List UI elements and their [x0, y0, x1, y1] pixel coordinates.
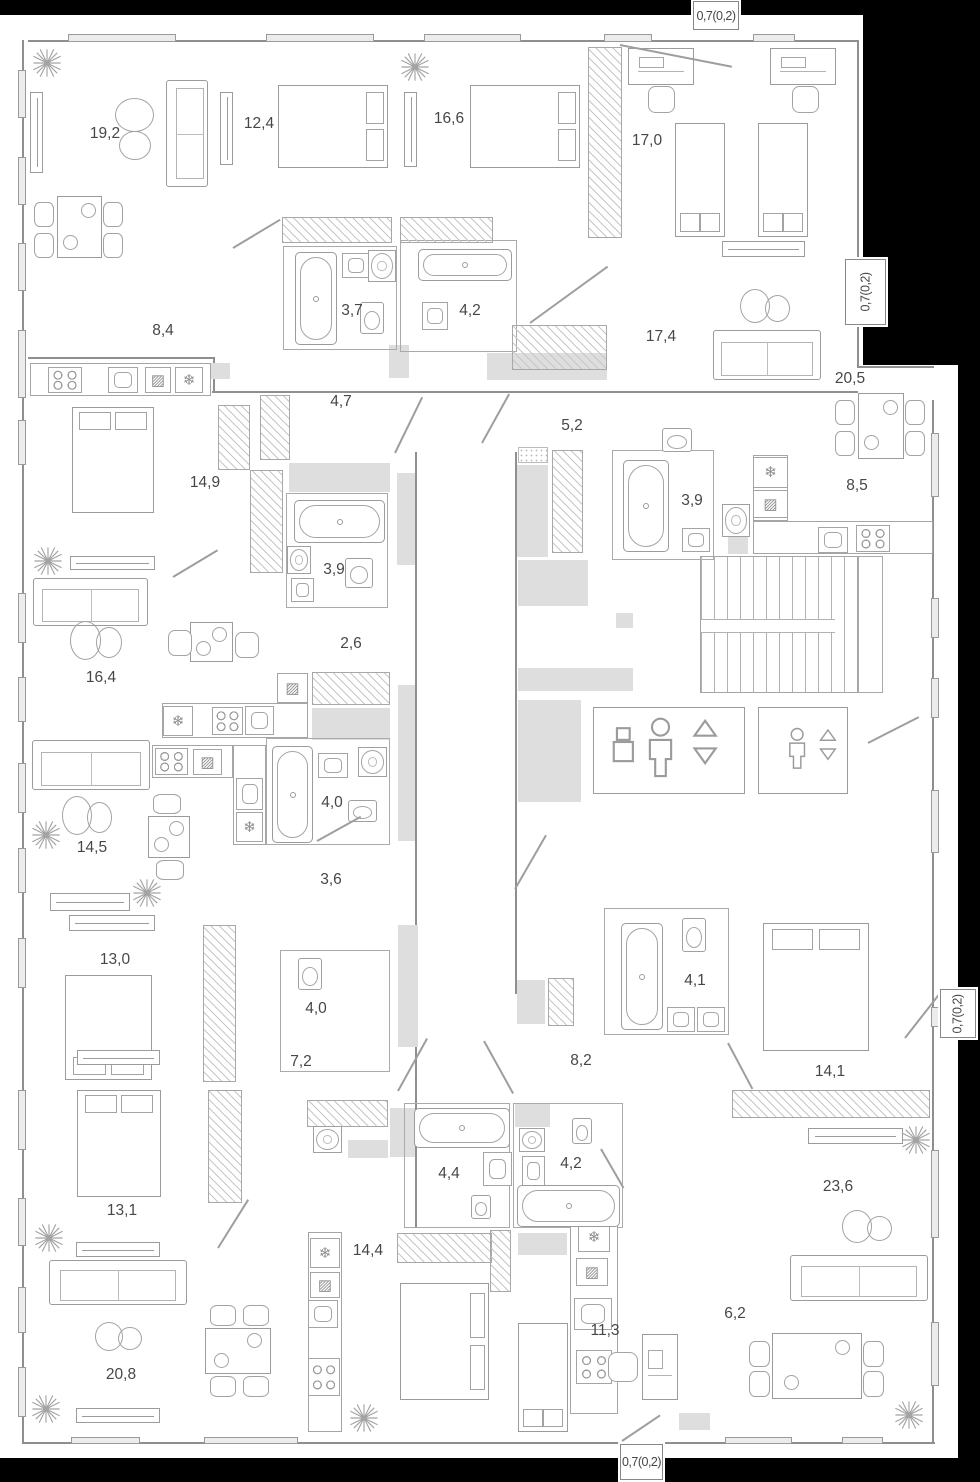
plant-icon	[899, 1123, 933, 1157]
toilet-icon	[682, 918, 706, 952]
chair	[243, 1305, 269, 1326]
wall	[932, 400, 934, 1444]
room-area-label: 16,4	[86, 669, 116, 687]
service-shaft	[209, 363, 230, 379]
washer-icon	[519, 1128, 545, 1152]
room-area-label: 4,0	[321, 794, 343, 812]
washer-icon	[722, 504, 750, 537]
window-marker	[18, 330, 26, 398]
window-marker	[18, 938, 26, 988]
chair	[749, 1341, 770, 1367]
service-shaft	[517, 465, 548, 557]
wardrobe	[312, 672, 390, 705]
appliance-icon: ❄	[310, 1238, 340, 1268]
desk	[642, 1334, 678, 1400]
room-area-label: 3,9	[323, 561, 345, 579]
window-marker	[931, 1007, 939, 1027]
bed	[470, 85, 580, 168]
plant-icon	[29, 1392, 63, 1426]
service-shaft	[518, 668, 633, 691]
chair	[34, 202, 54, 227]
wall	[857, 366, 934, 368]
toilet-icon	[360, 302, 384, 334]
dining-table	[190, 622, 233, 662]
balcony-label-box: 0,7(0,2)	[845, 259, 886, 325]
wardrobe	[307, 1100, 388, 1127]
room-area-label: 20,8	[106, 1366, 136, 1384]
plant-icon	[30, 46, 64, 80]
wardrobe	[548, 978, 574, 1026]
elevator-icon	[758, 707, 848, 794]
service-shaft	[397, 473, 415, 565]
sofa	[166, 80, 208, 187]
wardrobe	[203, 925, 236, 1082]
service-shaft	[517, 980, 545, 1024]
chair	[103, 233, 123, 258]
bathtub-icon	[272, 746, 313, 843]
appliance-icon: ❄	[236, 812, 263, 842]
chair	[34, 233, 54, 258]
coffee-table	[740, 287, 790, 327]
coffee-table	[70, 618, 122, 664]
service-shaft	[728, 534, 748, 554]
chair	[863, 1371, 884, 1397]
sink-icon	[318, 753, 348, 778]
chair	[608, 1352, 638, 1382]
balcony-area-label: 0,7(0,2)	[859, 272, 873, 311]
room-area-label: 13,0	[100, 951, 130, 969]
sofa	[713, 330, 821, 380]
window-marker	[842, 1437, 883, 1444]
window-marker	[18, 420, 26, 465]
room-area-label: 12,4	[244, 115, 274, 133]
window-marker	[18, 243, 26, 291]
chair	[905, 400, 925, 425]
service-shaft	[289, 463, 390, 492]
bed	[758, 123, 808, 237]
bed	[72, 407, 154, 513]
sink-icon	[483, 1152, 512, 1186]
window-marker	[931, 678, 939, 718]
wardrobe	[260, 395, 290, 460]
appliance-icon: ▨	[193, 749, 222, 775]
plant-icon	[347, 1401, 381, 1435]
room-area-label: 4,1	[684, 972, 706, 990]
appliance-icon: ❄	[175, 367, 203, 393]
balcony-label-box: 0,7(0,2)	[620, 1444, 663, 1480]
window-marker	[18, 763, 26, 813]
bed	[400, 1283, 489, 1400]
window-marker	[604, 34, 652, 42]
appliance-icon: ❄	[753, 457, 788, 488]
stove-icon	[576, 1350, 612, 1384]
sink-icon	[291, 578, 314, 602]
room-area-label: 4,7	[330, 393, 352, 411]
service-shaft	[679, 1413, 710, 1430]
room-area-label: 14,1	[815, 1063, 845, 1081]
room-area-label: 4,0	[305, 1000, 327, 1018]
chair	[210, 1376, 236, 1397]
elevator-icon	[593, 707, 745, 794]
chair	[103, 202, 123, 227]
plant-icon	[398, 50, 432, 84]
plant-icon	[31, 544, 65, 578]
stove-icon	[308, 1358, 340, 1396]
sink-icon	[818, 527, 848, 553]
tv-stand	[77, 1050, 160, 1065]
service-shaft	[518, 1233, 567, 1255]
room-area-label: 8,5	[846, 477, 868, 495]
sofa	[32, 740, 150, 790]
appliance-icon: ▨	[145, 367, 171, 393]
room-area-label: 16,6	[434, 110, 464, 128]
window-marker	[931, 790, 939, 853]
window-marker	[204, 1437, 298, 1444]
sink-icon	[522, 1156, 545, 1186]
service-shaft	[518, 560, 588, 606]
sink-icon	[697, 1007, 725, 1032]
staircase	[700, 556, 858, 693]
wardrobe	[490, 1230, 511, 1292]
room-area-label: 4,2	[459, 302, 481, 320]
stove-icon	[48, 367, 82, 393]
bathtub-icon	[294, 500, 385, 543]
service-shaft	[398, 685, 415, 841]
appliance-icon: ❄	[163, 706, 193, 736]
service-shaft	[398, 925, 418, 1047]
washer-icon	[358, 747, 387, 777]
washer-icon	[368, 250, 396, 282]
room-area-label: 3,9	[681, 492, 703, 510]
sink-icon	[245, 706, 274, 735]
chair	[648, 86, 675, 113]
chair	[792, 86, 819, 113]
sofa	[790, 1255, 928, 1301]
bed	[675, 123, 725, 237]
doormat	[518, 447, 548, 463]
tv-stand	[76, 1408, 160, 1423]
window-marker	[18, 593, 26, 643]
bed	[278, 85, 388, 168]
sink-icon	[667, 1007, 695, 1032]
room-area-label: 5,2	[561, 417, 583, 435]
window-marker	[18, 1198, 26, 1246]
chair	[905, 431, 925, 456]
window-marker	[18, 1367, 26, 1417]
room-area-label: 8,2	[570, 1052, 592, 1070]
room-area-label: 14,4	[353, 1242, 383, 1260]
room-area-label: 3,6	[320, 871, 342, 889]
room-area-label: 17,4	[646, 328, 676, 346]
wardrobe	[218, 405, 250, 470]
wardrobe	[552, 450, 583, 553]
window-marker	[68, 34, 176, 42]
sink-icon	[108, 367, 138, 393]
bathtub-icon	[414, 1108, 510, 1148]
service-shaft	[518, 700, 581, 802]
service-shaft	[348, 1140, 388, 1158]
plant-icon	[32, 1221, 66, 1255]
tv-stand	[808, 1128, 903, 1144]
balcony-area-label: 0,7(0,2)	[696, 9, 735, 23]
window-marker	[266, 34, 374, 42]
toilet-icon	[348, 800, 377, 822]
sink-icon	[422, 302, 448, 330]
chair	[153, 794, 181, 814]
service-shaft	[312, 708, 390, 740]
window-marker	[725, 1437, 792, 1444]
room-area-label: 14,9	[190, 474, 220, 492]
appliance-icon: ▨	[277, 673, 308, 703]
chair	[835, 431, 855, 456]
dining-table	[148, 816, 190, 858]
room-area-label: 4,4	[438, 1165, 460, 1183]
chair	[168, 630, 192, 656]
balcony-area-label: 0,7(0,2)	[622, 1455, 661, 1469]
wall	[22, 1442, 935, 1444]
tv-stand	[76, 1242, 160, 1257]
window-marker	[18, 1090, 26, 1150]
coffee-table	[95, 1320, 142, 1354]
stove-icon	[212, 707, 243, 735]
window-marker	[931, 598, 939, 638]
wall	[212, 391, 858, 393]
service-shaft	[616, 613, 633, 628]
wardrobe	[732, 1090, 930, 1118]
sink-icon	[342, 253, 370, 278]
sink-icon	[236, 778, 263, 810]
room-area-label: 23,6	[823, 1178, 853, 1196]
wardrobe	[400, 217, 493, 243]
tv-stand	[30, 92, 43, 173]
bathtub-icon	[295, 252, 337, 345]
room-area-label: 19,2	[90, 125, 120, 143]
chair	[749, 1371, 770, 1397]
toilet-icon	[572, 1118, 592, 1144]
window-marker	[18, 157, 26, 205]
bathtub-icon	[418, 249, 512, 281]
desk	[770, 48, 836, 85]
sink-icon	[308, 1300, 338, 1328]
coffee-table	[62, 793, 112, 839]
plant-icon	[892, 1398, 926, 1432]
balcony-label-box: 0,7(0,2)	[940, 989, 976, 1038]
window-marker	[71, 1437, 140, 1444]
dining-table	[858, 393, 904, 459]
window-marker	[18, 677, 26, 722]
tv-stand	[220, 92, 233, 165]
window-marker	[931, 1322, 939, 1386]
bed	[518, 1323, 568, 1432]
room-area-label: 17,0	[632, 132, 662, 150]
bathtub-icon	[623, 460, 669, 552]
wardrobe	[588, 47, 622, 238]
bed	[77, 1090, 161, 1197]
appliance-icon: ▨	[576, 1258, 608, 1286]
washer-icon	[287, 546, 311, 574]
room-area-label: 3,7	[341, 302, 363, 320]
sink-icon	[682, 528, 710, 552]
window-marker	[18, 70, 26, 118]
coffee-table	[842, 1208, 892, 1246]
window-marker	[18, 848, 26, 893]
wardrobe	[282, 217, 392, 243]
chair	[243, 1376, 269, 1397]
toilet-icon	[471, 1195, 491, 1219]
window-marker	[18, 1287, 26, 1333]
room-area-label: 6,2	[724, 1305, 746, 1323]
room-area-label: 8,4	[152, 322, 174, 340]
stove-icon	[856, 525, 890, 552]
chair	[863, 1341, 884, 1367]
plant-icon	[130, 876, 164, 910]
wall	[28, 357, 214, 359]
plant-icon	[29, 818, 63, 852]
window-marker	[424, 34, 521, 42]
appliance-icon: ▨	[753, 490, 788, 518]
chair	[235, 632, 259, 658]
toilet-icon	[345, 558, 373, 588]
tv-stand	[70, 556, 155, 570]
room-area-label: 20,5	[835, 370, 865, 388]
appliance-icon: ▨	[310, 1272, 340, 1298]
dining-table	[57, 196, 102, 258]
toilet-icon	[298, 958, 322, 990]
tv-stand	[722, 241, 805, 257]
bathtub-icon	[517, 1185, 620, 1227]
room-outline	[858, 556, 883, 693]
tv-stand	[69, 915, 155, 931]
bed	[763, 923, 869, 1051]
balcony-area-label: 0,7(0,2)	[951, 994, 965, 1033]
room-area-label: 11,3	[590, 1322, 619, 1340]
wardrobe	[250, 470, 283, 573]
chair	[210, 1305, 236, 1326]
sofa	[49, 1260, 187, 1305]
dining-table	[772, 1333, 862, 1399]
balcony-label-box: 0,7(0,2)	[693, 1, 739, 30]
room-area-label: 14,5	[77, 839, 107, 857]
room-area-label: 4,2	[560, 1155, 582, 1173]
window-marker	[931, 433, 939, 497]
washer-icon	[313, 1126, 342, 1153]
tv-stand	[404, 92, 417, 167]
room-area-label: 7,2	[290, 1053, 312, 1071]
room-area-label: 13,1	[107, 1202, 137, 1220]
wardrobe	[512, 325, 607, 370]
room-area-label: 2,6	[340, 635, 362, 653]
wardrobe	[397, 1233, 492, 1263]
floor-plan: ❄❄❄❄❄❄▨▨▨▨▨▨19,212,416,617,08,43,74,217,…	[0, 0, 980, 1482]
window-marker	[753, 34, 795, 42]
wardrobe	[208, 1090, 242, 1203]
stove-icon	[155, 748, 188, 775]
dining-table	[205, 1328, 271, 1374]
toilet-icon	[662, 428, 692, 452]
bathtub-icon	[621, 923, 663, 1030]
tv-stand	[50, 893, 130, 911]
window-marker	[931, 1150, 939, 1238]
chair	[835, 400, 855, 425]
